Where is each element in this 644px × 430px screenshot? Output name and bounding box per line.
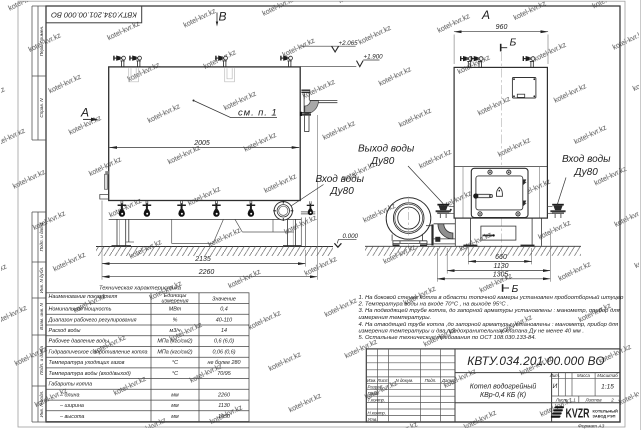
svg-text:И: И	[553, 383, 558, 390]
svg-text:Н.контр.: Н.контр.	[368, 410, 387, 415]
svg-text:Вход воды: Вход воды	[316, 174, 365, 185]
svg-text:Справ. N: Справ. N	[39, 98, 44, 118]
svg-text:70/95: 70/95	[217, 371, 231, 377]
svg-text:Взам. инв. N: Взам. инв. N	[39, 302, 44, 329]
svg-text:А: А	[481, 8, 490, 22]
svg-text:Изм.: Изм.	[367, 378, 376, 383]
svg-text:%: %	[173, 317, 178, 323]
svg-text:Выход воды: Выход воды	[358, 144, 415, 155]
svg-text:Расход воды: Расход воды	[49, 328, 81, 334]
svg-text:Формат А3: Формат А3	[578, 424, 605, 430]
svg-text:Перв. примен.: Перв. примен.	[39, 26, 44, 57]
svg-text:N докум.: N докум.	[396, 378, 414, 383]
svg-text:°С: °С	[172, 371, 178, 377]
svg-text:Габариты котла: Габариты котла	[49, 382, 93, 388]
svg-text:МПа (кгс/см2): МПа (кгс/см2)	[157, 339, 192, 345]
svg-text:– высота: – высота	[59, 414, 84, 420]
svg-text:Подп.: Подп.	[425, 378, 437, 383]
svg-text:°С: °С	[172, 360, 178, 366]
svg-text:Ду80: Ду80	[574, 167, 599, 178]
svg-text:ЗАВОД РЭП: ЗАВОД РЭП	[593, 414, 616, 419]
svg-text:МВт: МВт	[169, 307, 182, 313]
svg-text:мм: мм	[171, 392, 179, 398]
svg-text:2005: 2005	[193, 140, 210, 147]
svg-text:Подп. и дата: Подп. и дата	[39, 346, 44, 375]
svg-text:КВТУ.034.201.00.000 ВО: КВТУ.034.201.00.000 ВО	[51, 11, 137, 20]
svg-text:Значение: Значение	[212, 297, 236, 303]
svg-text:Лист: Лист	[555, 398, 568, 403]
svg-text:Листов: Листов	[585, 398, 603, 403]
svg-text:14: 14	[221, 328, 227, 334]
svg-text:1:15: 1:15	[601, 384, 614, 391]
svg-text:– ширина: – ширина	[59, 403, 84, 409]
svg-text:Т.контр.: Т.контр.	[368, 398, 386, 403]
svg-text:измерения: измерения	[162, 298, 189, 304]
svg-text:1305: 1305	[493, 271, 509, 278]
svg-text:Пров.: Пров.	[368, 391, 380, 396]
svg-text:Масштаб: Масштаб	[597, 373, 618, 378]
svg-text:Температура уходящих газов: Температура уходящих газов	[49, 360, 125, 366]
svg-text:2260: 2260	[217, 392, 230, 398]
svg-text:Вход воды: Вход воды	[562, 154, 611, 165]
svg-text:Дата: Дата	[441, 378, 454, 383]
svg-text:1950: 1950	[218, 414, 230, 420]
svg-text:измерения температуры и два пр: измерения температуры и два предохраните…	[359, 328, 584, 334]
svg-text:Инв. N дубл.: Инв. N дубл.	[39, 267, 44, 294]
svg-text:40-110: 40-110	[216, 317, 232, 323]
svg-text:Ду80: Ду80	[330, 186, 355, 197]
svg-text:Утв.: Утв.	[368, 417, 378, 422]
svg-text:Рабочее давление воды: Рабочее давление воды	[49, 339, 109, 345]
svg-text:4. На отводящей трубе котла ,: 4. На отводящей трубе котла ,до запорной…	[359, 321, 619, 328]
svg-text:Подп. и дата: Подп. и дата	[39, 222, 44, 251]
svg-text:см. п. 1: см. п. 1	[238, 108, 278, 119]
svg-text:5. Остальные технические треб: 5. Остальные технические требования по О…	[359, 335, 537, 341]
svg-text:Температура воды (вход/выход): Температура воды (вход/выход)	[49, 371, 132, 377]
svg-text:Техническая характеристика: Техническая характеристика	[99, 286, 182, 292]
svg-text:3. На подводящей трубе котла,: 3. На подводящей трубе котла, до запорно…	[359, 307, 620, 314]
svg-text:МПа (кгс/см2): МПа (кгс/см2)	[157, 349, 192, 355]
svg-text:Котел водогрейный: Котел водогрейный	[470, 382, 537, 390]
svg-text:Лит.: Лит.	[549, 373, 560, 378]
svg-text:1. На боковой стенке котла в: 1. На боковой стенке котла в области топ…	[359, 294, 625, 301]
svg-text:Гидравлическое сопротивление к: Гидравлическое сопротивление котла	[49, 349, 148, 355]
svg-text:0,4: 0,4	[220, 307, 228, 313]
svg-text:1130: 1130	[218, 403, 230, 409]
svg-text:Лист: Лист	[376, 378, 389, 383]
svg-text:измерения температуры.: измерения температуры.	[359, 315, 432, 321]
svg-text:660: 660	[495, 254, 507, 261]
svg-text:не более 280: не более 280	[208, 360, 241, 366]
svg-text:Разраб.: Разраб.	[368, 385, 384, 390]
svg-text:960: 960	[496, 24, 508, 31]
svg-text:2. Температура воды на входе: 2. Температура воды на входе 70°С , на в…	[358, 302, 509, 308]
svg-text:0,06 (0,6): 0,06 (0,6)	[212, 349, 235, 355]
svg-text:Инв. N подл.: Инв. N подл.	[39, 391, 44, 418]
svg-text:м3/ч: м3/ч	[170, 328, 181, 334]
svg-text:Ду80: Ду80	[370, 156, 395, 167]
svg-text:KVZR: KVZR	[566, 407, 590, 421]
svg-text:КВТУ.034.201.00.000 ВО: КВТУ.034.201.00.000 ВО	[467, 354, 605, 368]
svg-text:В: В	[219, 10, 227, 24]
svg-text:Диапазон рабочего регулировани: Диапазон рабочего регулирования	[48, 317, 137, 323]
svg-text:Номинальная мощность: Номинальная мощность	[49, 307, 112, 313]
svg-text:2: 2	[610, 398, 614, 403]
svg-text:мм: мм	[171, 414, 179, 420]
svg-text:1130: 1130	[493, 263, 508, 270]
svg-text:0,6 (6,0): 0,6 (6,0)	[214, 339, 234, 345]
svg-text:– длина: – длина	[59, 392, 79, 398]
svg-text:Б: Б	[512, 283, 519, 295]
svg-text:А: А	[80, 106, 89, 120]
svg-text:2135: 2135	[194, 256, 211, 263]
svg-text:Наименование показателя: Наименование показателя	[49, 294, 118, 300]
svg-text:мм: мм	[171, 403, 179, 409]
svg-text:Масса: Масса	[577, 373, 591, 378]
svg-text:Б: Б	[510, 37, 517, 49]
svg-text:2260: 2260	[198, 269, 215, 276]
svg-text:КВр-0,4 КБ (К): КВр-0,4 КБ (К)	[480, 392, 526, 399]
